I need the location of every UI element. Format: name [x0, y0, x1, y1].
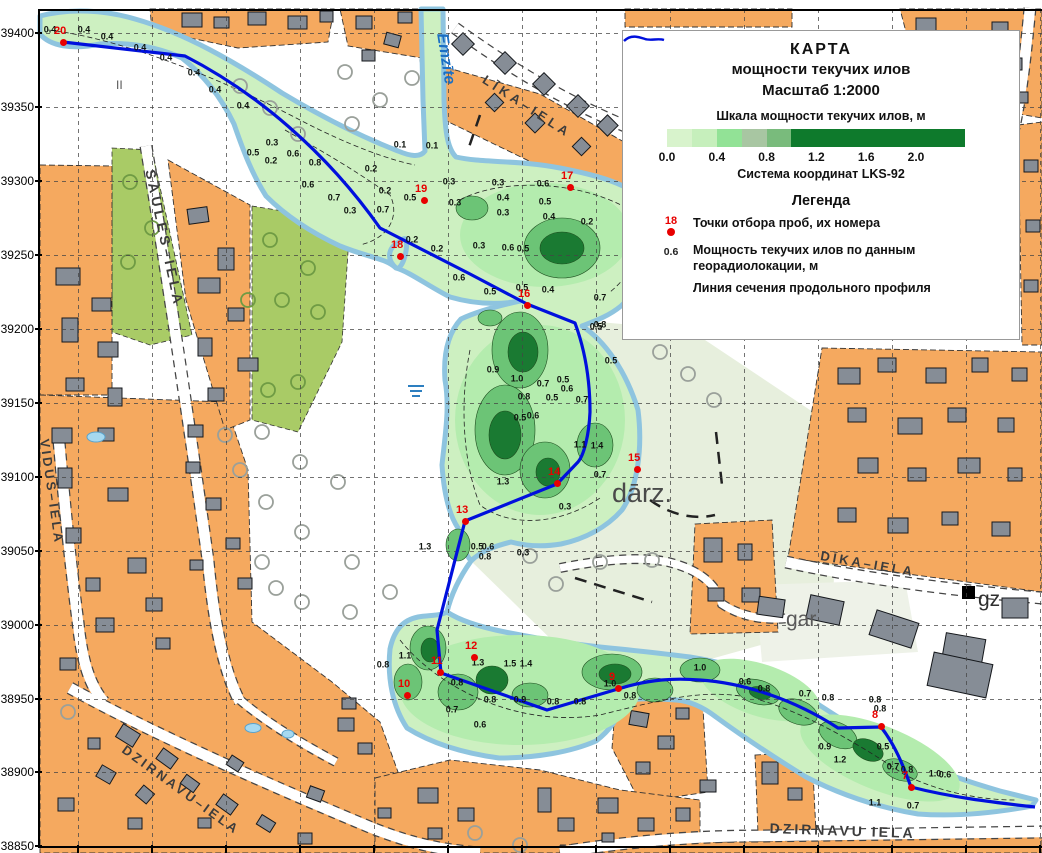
depth-value-label: 0.6	[939, 771, 952, 780]
sample-point-number: 7	[902, 771, 908, 782]
depth-value-label: 0.3	[449, 199, 462, 208]
map-canvas: КАРТА мощности текучих илов Масштаб 1:20…	[0, 0, 1042, 853]
sample-point-dot	[615, 685, 622, 692]
depth-value-label: 0.8	[822, 694, 835, 703]
colorbar-cell	[742, 129, 767, 147]
y-axis-label: 39300	[0, 174, 34, 188]
depth-value-label: 0.3	[492, 179, 505, 188]
y-axis-label: 39200	[0, 322, 34, 336]
depth-value-label: 0.3	[517, 549, 530, 558]
y-axis-tick	[35, 771, 42, 773]
y-axis-tick	[35, 328, 42, 330]
sample-point-number: 12	[465, 641, 477, 652]
y-axis-label: 39100	[0, 470, 34, 484]
x-axis-tick	[77, 845, 79, 853]
sample-point-number: 20	[54, 26, 66, 37]
depth-value-label: 0.6	[739, 678, 752, 687]
depth-value-label: 0.5	[247, 149, 260, 158]
y-axis-label: 39400	[0, 26, 34, 40]
depth-value-label: 0.4	[542, 286, 555, 295]
depth-value-label: 0.6	[537, 180, 550, 189]
depth-value-label: 0.6	[561, 385, 574, 394]
sample-point-dot	[462, 518, 469, 525]
depth-value-label: 0.1	[426, 142, 439, 151]
depth-value-label: 1.3	[419, 543, 432, 552]
depth-value-label: 0.4	[543, 213, 556, 222]
depth-value-label: 0.4	[78, 26, 91, 35]
y-axis-label: 39050	[0, 544, 34, 558]
place-label: gar.	[786, 608, 821, 632]
y-axis-tick	[35, 550, 42, 552]
depth-value-label: 0.8	[309, 159, 322, 168]
y-axis-tick	[35, 180, 42, 182]
x-axis-tick	[225, 845, 227, 853]
depth-value-label: 0.5	[517, 245, 530, 254]
sample-point-number: 15	[628, 453, 640, 464]
depth-value-label: 0.2	[581, 218, 594, 227]
place-label: gz	[978, 588, 1000, 612]
sample-point-number: 8	[872, 710, 878, 721]
depth-value-label: 0.3	[266, 139, 279, 148]
depth-value-label: 0.5	[877, 743, 890, 752]
depth-value-label: 0.8	[547, 698, 560, 707]
depth-value-label: 0.4	[160, 54, 173, 63]
depth-value-label: 0.3	[559, 503, 572, 512]
legend-box: КАРТА мощности текучих илов Масштаб 1:20…	[622, 30, 1020, 340]
depth-value-label: 0.8	[484, 696, 497, 705]
y-axis-label: 38900	[0, 765, 34, 779]
depth-value-label: 1.0	[511, 375, 524, 384]
sample-point-dot	[634, 466, 641, 473]
depth-value-label: 0.7	[887, 763, 900, 772]
depth-value-label: 0.2	[379, 187, 392, 196]
sample-point-number: 16	[518, 289, 530, 300]
x-axis-tick	[965, 845, 967, 853]
depth-value-label: 0.4	[134, 44, 147, 53]
depth-value-label: 0.8	[518, 393, 531, 402]
depth-value-label: 0.8	[574, 698, 587, 707]
sample-point-dot	[554, 480, 561, 487]
depth-value-label: 0.1	[394, 141, 407, 150]
sample-point-number: 19	[415, 184, 427, 195]
depth-value-label: 0.3	[473, 242, 486, 251]
depth-value-label: 0.3	[443, 178, 456, 187]
depth-value-label: 0.4	[209, 86, 222, 95]
legend-item-profile-line: Линия сечения продольного профиля	[649, 281, 1005, 297]
x-axis-tick	[817, 845, 819, 853]
depth-value-icon: 0.6	[649, 243, 693, 258]
x-axis-tick	[743, 845, 745, 853]
depth-value-label: 0.5	[605, 357, 618, 366]
depth-value-label: 0.7	[377, 206, 390, 215]
colorbar-cell	[717, 129, 742, 147]
depth-value-label: 0.6	[302, 181, 315, 190]
x-axis-tick	[521, 845, 523, 853]
depth-value-label: 0.6	[527, 412, 540, 421]
x-axis-tick	[1039, 845, 1041, 853]
depth-value-label: 0.4	[188, 69, 201, 78]
place-label: dārz.	[612, 478, 672, 509]
depth-value-label: 0.7	[594, 294, 607, 303]
legend-title: КАРТА	[623, 41, 1019, 59]
depth-value-label: 0.8	[479, 553, 492, 562]
depth-value-label: 0.5	[484, 288, 497, 297]
sample-point-dot	[421, 197, 428, 204]
depth-value-label: 0.8	[758, 685, 771, 694]
y-axis-tick	[35, 476, 42, 478]
x-axis-tick	[151, 845, 153, 853]
y-axis-label: 39150	[0, 396, 34, 410]
sample-point-number: 13	[456, 505, 468, 516]
depth-value-label: 0.9	[487, 366, 500, 375]
sample-point-dot	[471, 654, 478, 661]
y-axis-label: 39000	[0, 618, 34, 632]
colorbar-tick-label: 0.4	[701, 150, 733, 164]
depth-value-label: 0.6	[453, 274, 466, 283]
depth-value-label: 0.2	[406, 236, 419, 245]
sample-point-number: 17	[561, 171, 573, 182]
x-axis-tick	[669, 845, 671, 853]
depth-value-label: 0.4	[497, 194, 510, 203]
depth-value-label: 1.4	[520, 660, 533, 669]
depth-value-label: 1.1	[869, 799, 882, 808]
depth-value-label: 0.2	[431, 245, 444, 254]
colorbar-tick-label: 2.0	[900, 150, 932, 164]
depth-value-label: 0.7	[576, 396, 589, 405]
y-axis-label: 39250	[0, 248, 34, 262]
y-axis-tick	[35, 845, 42, 847]
depth-value-label: 0.5	[590, 323, 603, 332]
depth-value-label: 1.4	[591, 442, 604, 451]
x-axis-tick	[299, 845, 301, 853]
colorbar-title: Шкала мощности текучих илов, м	[623, 109, 1019, 123]
colorbar-ticks: 0.00.40.81.21.62.0	[623, 150, 1019, 165]
y-axis-tick	[35, 106, 42, 108]
sample-point-dot	[437, 669, 444, 676]
depth-value-label: 0.5	[539, 198, 552, 207]
sample-point-number: 14	[548, 467, 560, 478]
x-axis-tick	[447, 845, 449, 853]
colorbar-tick-label: 1.2	[800, 150, 832, 164]
map-frame-left	[38, 9, 40, 847]
legend-item-sample-points: 18 Точки отбора проб, их номера	[649, 216, 1005, 236]
depth-value-label: 0.5	[546, 394, 559, 403]
y-axis-label: 38850	[0, 839, 34, 853]
depth-value-label: 0.2	[365, 165, 378, 174]
depth-value-label: 0.7	[328, 194, 341, 203]
depth-value-label: 0.9	[819, 743, 832, 752]
depth-value-label: 0.8	[624, 692, 637, 701]
sample-point-number: 10	[398, 679, 410, 690]
depth-value-label: 1.5	[504, 660, 517, 669]
y-axis-tick	[35, 624, 42, 626]
depth-value-label: 0.8	[451, 679, 464, 688]
depth-value-label: 0.2	[265, 157, 278, 166]
colorbar-cell	[667, 129, 692, 147]
y-axis-tick	[35, 32, 42, 34]
sample-point-dot	[878, 723, 885, 730]
depth-value-label: 0.7	[446, 706, 459, 715]
x-axis-tick	[373, 845, 375, 853]
sample-point-number: 11	[431, 656, 443, 667]
depth-value-label: 1.1	[574, 441, 587, 450]
silt-colorbar	[667, 129, 965, 147]
x-axis-tick	[891, 845, 893, 853]
depth-value-label: 0.8	[377, 661, 390, 670]
sample-point-dot	[404, 692, 411, 699]
sample-point-number: 9	[609, 672, 615, 683]
sample-point-dot	[60, 39, 67, 46]
x-axis-tick	[595, 845, 597, 853]
colorbar-cell	[791, 129, 965, 147]
depth-value-label: 0.4	[101, 33, 114, 42]
depth-value-label: 0.6	[482, 543, 495, 552]
y-axis-tick	[35, 254, 42, 256]
depth-value-label: 0.4	[237, 102, 250, 111]
colorbar-tick-label: 0.8	[751, 150, 783, 164]
colorbar-tick-label: 0.0	[651, 150, 683, 164]
depth-value-label: 1.0	[694, 664, 707, 673]
depth-value-label: 1.1	[399, 652, 412, 661]
colorbar-cell	[767, 129, 791, 147]
map-frame-top	[38, 9, 1042, 11]
legend-subtitle: мощности текучих илов	[623, 61, 1019, 78]
place-label: II	[116, 78, 123, 92]
sample-point-dot	[908, 784, 915, 791]
y-axis-label: 38950	[0, 692, 34, 706]
depth-value-label: 0.6	[502, 244, 515, 253]
sample-point-icon: 18	[649, 216, 693, 236]
colorbar-cell	[692, 129, 717, 147]
y-axis-tick	[35, 402, 42, 404]
depth-value-label: 1.3	[497, 478, 510, 487]
y-axis-tick	[35, 698, 42, 700]
sample-point-dot	[524, 302, 531, 309]
sample-point-dot	[397, 253, 404, 260]
depth-value-label: 0.7	[537, 380, 550, 389]
legend-heading: Легенда	[623, 193, 1019, 209]
depth-value-label: 0.7	[799, 690, 812, 699]
depth-value-label: 0.7	[594, 471, 607, 480]
depth-value-label: 0.9	[514, 696, 527, 705]
depth-value-label: 1.2	[834, 756, 847, 765]
legend-item-depth: 0.6 Мощность текучих илов по данным геор…	[649, 243, 1005, 274]
depth-value-label: 0.3	[344, 207, 357, 216]
y-axis-label: 39350	[0, 100, 34, 114]
depth-value-label: 0.5	[514, 414, 527, 423]
depth-value-label: 0.6	[287, 150, 300, 159]
colorbar-tick-label: 1.6	[850, 150, 882, 164]
sample-point-number: 18	[391, 240, 403, 251]
legend-scale-text: Масштаб 1:2000	[623, 82, 1019, 99]
depth-value-label: 0.7	[907, 802, 920, 811]
depth-value-label: 0.6	[474, 721, 487, 730]
sample-point-dot	[567, 184, 574, 191]
depth-value-label: 0.3	[497, 209, 510, 218]
red-dot-icon	[667, 228, 675, 236]
coordinate-system-label: Система координат LKS-92	[623, 167, 1019, 181]
